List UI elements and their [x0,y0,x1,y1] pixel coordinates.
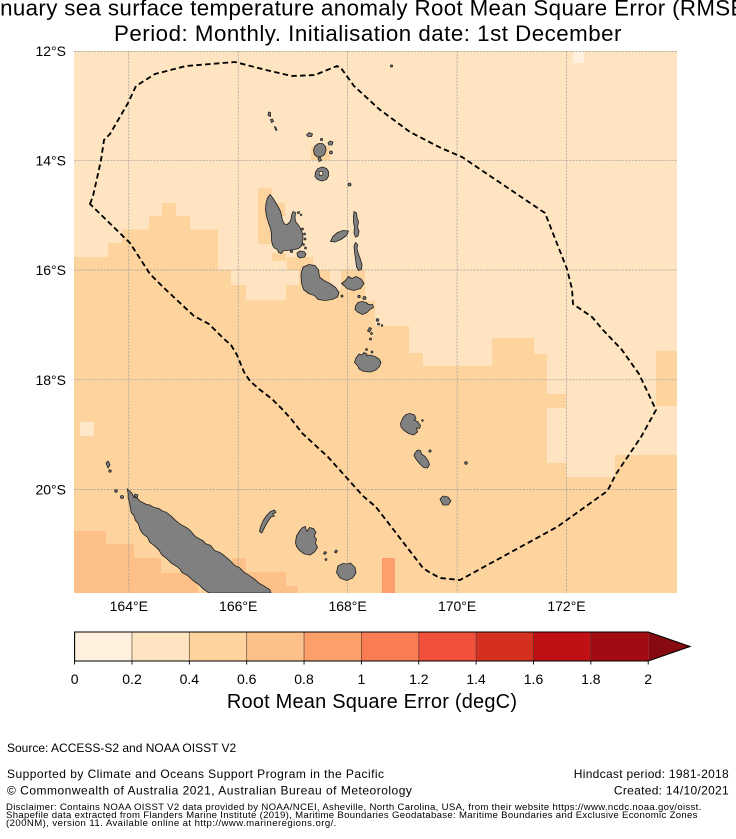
svg-text:14°S: 14°S [35,152,66,168]
svg-text:12°S: 12°S [35,43,66,59]
svg-text:1.6: 1.6 [524,671,544,687]
svg-text:(200NM), version 11. Available: (200NM), version 11. Available online at… [6,818,337,829]
svg-text:Hindcast period: 1981-2018: Hindcast period: 1981-2018 [574,767,729,781]
svg-text:172°E: 172°E [547,598,585,614]
svg-text:0.6: 0.6 [237,671,257,687]
svg-text:Root Mean Square Error (degC): Root Mean Square Error (degC) [227,691,517,713]
svg-text:20°S: 20°S [35,482,66,498]
svg-text:Supported by Climate and Ocean: Supported by Climate and Oceans Support … [7,767,384,781]
svg-text:1: 1 [358,671,366,687]
svg-text:0.8: 0.8 [294,671,314,687]
svg-text:170°E: 170°E [438,598,476,614]
svg-text:0.2: 0.2 [122,671,142,687]
svg-text:168°E: 168°E [328,598,366,614]
svg-text:© Commonwealth of Australia 20: © Commonwealth of Australia 2021, Austra… [7,784,412,798]
svg-text:0.4: 0.4 [180,671,200,687]
svg-text:2: 2 [644,671,652,687]
svg-text:Period: Monthly. Initialisatio: Period: Monthly. Initialisation date: 1s… [114,21,622,46]
svg-text:1.4: 1.4 [466,671,486,687]
svg-text:Source: ACCESS-S2 and NOAA OIS: Source: ACCESS-S2 and NOAA OISST V2 [7,741,237,755]
svg-text:1.2: 1.2 [409,671,429,687]
svg-text:0: 0 [71,671,79,687]
svg-text:Created: 14/10/2021: Created: 14/10/2021 [614,784,729,798]
svg-text:16°S: 16°S [35,262,66,278]
svg-text:18°S: 18°S [35,372,66,388]
svg-text:January sea surface temperatur: January sea surface temperature anomaly … [0,0,736,21]
svg-text:164°E: 164°E [110,598,148,614]
svg-text:1.8: 1.8 [581,671,601,687]
svg-text:166°E: 166°E [219,598,257,614]
